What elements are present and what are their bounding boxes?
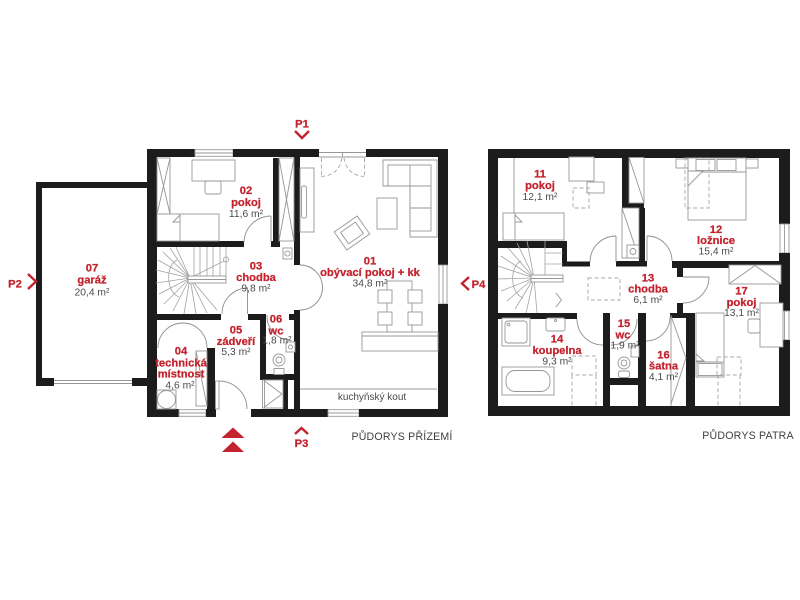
svg-text:kuchyňský kout: kuchyňský kout <box>338 392 407 403</box>
svg-text:20,4 m²: 20,4 m² <box>75 288 110 299</box>
svg-text:P4: P4 <box>472 279 486 291</box>
svg-text:03: 03 <box>250 261 262 273</box>
svg-text:01: 01 <box>364 256 376 268</box>
svg-text:1,9 m²: 1,9 m² <box>610 341 640 352</box>
svg-text:15: 15 <box>618 318 630 330</box>
svg-text:obývací pokoj + kk: obývací pokoj + kk <box>320 267 421 279</box>
svg-text:9,8 m²: 9,8 m² <box>241 284 271 295</box>
svg-text:garáž: garáž <box>77 275 107 287</box>
svg-text:4,6 m²: 4,6 m² <box>165 381 195 392</box>
svg-text:pokoj: pokoj <box>525 180 555 192</box>
svg-text:5,3 m²: 5,3 m² <box>221 347 251 358</box>
svg-text:P1: P1 <box>295 119 309 131</box>
svg-text:06: 06 <box>270 314 282 326</box>
svg-text:ložnice: ložnice <box>697 235 735 247</box>
svg-text:P2: P2 <box>8 279 22 291</box>
svg-text:12,1 m²: 12,1 m² <box>523 192 558 203</box>
svg-text:14: 14 <box>551 334 564 346</box>
svg-text:PŮDORYS PŘÍZEMÍ: PŮDORYS PŘÍZEMÍ <box>351 430 452 443</box>
svg-text:07: 07 <box>86 263 98 275</box>
svg-text:pokoj: pokoj <box>231 197 261 209</box>
svg-text:místnost: místnost <box>158 369 205 381</box>
svg-text:PŮDORYS PATRA: PŮDORYS PATRA <box>702 429 794 442</box>
svg-text:34,8 m²: 34,8 m² <box>353 279 388 290</box>
svg-text:04: 04 <box>175 346 188 358</box>
svg-text:P3: P3 <box>295 438 309 450</box>
svg-text:šatna: šatna <box>649 361 679 373</box>
svg-text:17: 17 <box>735 286 747 298</box>
svg-text:11: 11 <box>534 169 546 181</box>
svg-text:chodba: chodba <box>628 284 669 296</box>
svg-text:02: 02 <box>240 185 252 197</box>
svg-text:1,8 m²: 1,8 m² <box>262 336 292 347</box>
svg-text:koupelna: koupelna <box>532 345 582 357</box>
svg-text:6,1 m²: 6,1 m² <box>633 295 663 306</box>
svg-text:chodba: chodba <box>236 272 277 284</box>
svg-text:13,1 m²: 13,1 m² <box>724 308 759 319</box>
svg-text:15,4 m²: 15,4 m² <box>699 247 734 258</box>
svg-text:11,6 m²: 11,6 m² <box>229 209 264 220</box>
svg-text:9,3 m²: 9,3 m² <box>542 357 572 368</box>
svg-text:05: 05 <box>230 325 242 337</box>
svg-text:4,1 m²: 4,1 m² <box>649 372 679 383</box>
